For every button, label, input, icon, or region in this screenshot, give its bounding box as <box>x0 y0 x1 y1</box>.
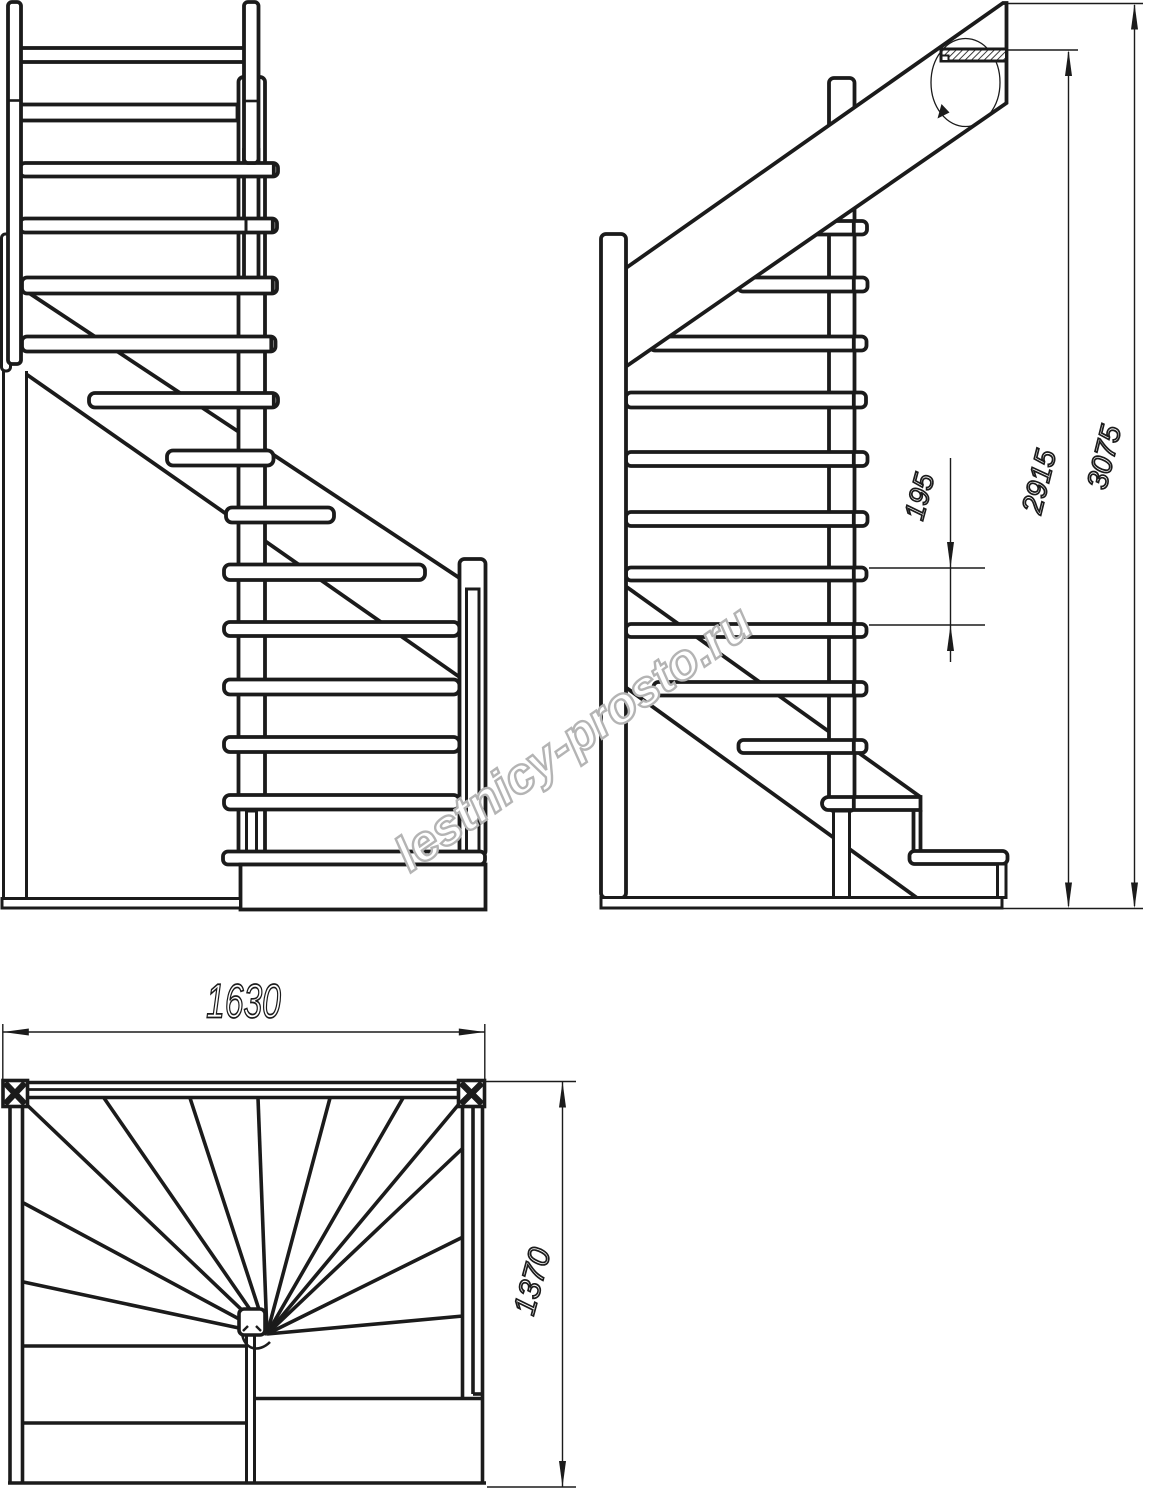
svg-text:1630: 1630 <box>206 973 281 1027</box>
svg-text:1370: 1370 <box>507 1244 557 1318</box>
svg-text:3075: 3075 <box>1081 421 1128 492</box>
svg-text:195: 195 <box>898 470 940 524</box>
svg-text:2915: 2915 <box>1016 446 1063 518</box>
